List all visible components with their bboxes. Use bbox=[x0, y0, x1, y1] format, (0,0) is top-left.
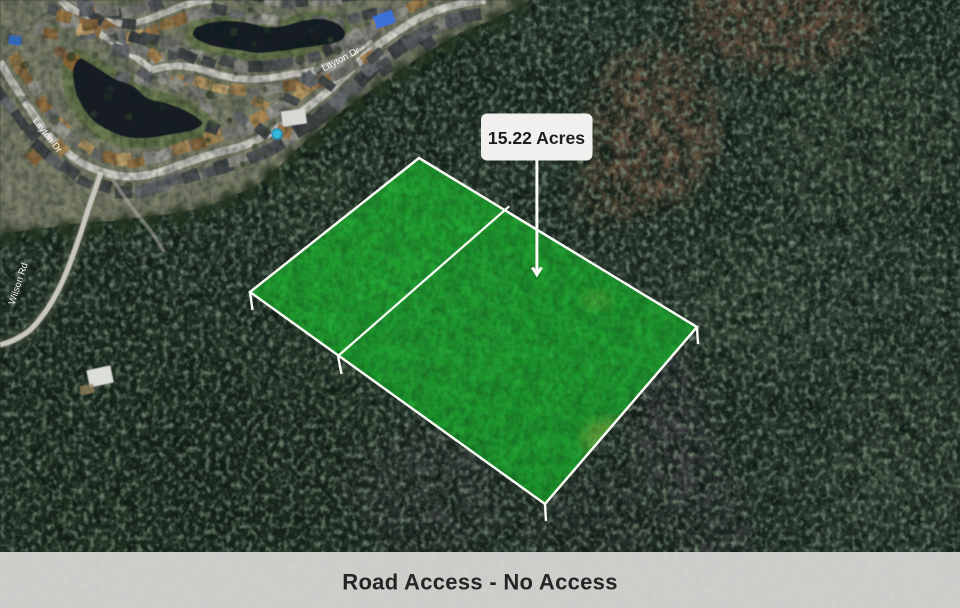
svg-text:15.22 Acres: 15.22 Acres bbox=[488, 128, 585, 148]
svg-text:Road Access - No Access: Road Access - No Access bbox=[342, 570, 618, 595]
